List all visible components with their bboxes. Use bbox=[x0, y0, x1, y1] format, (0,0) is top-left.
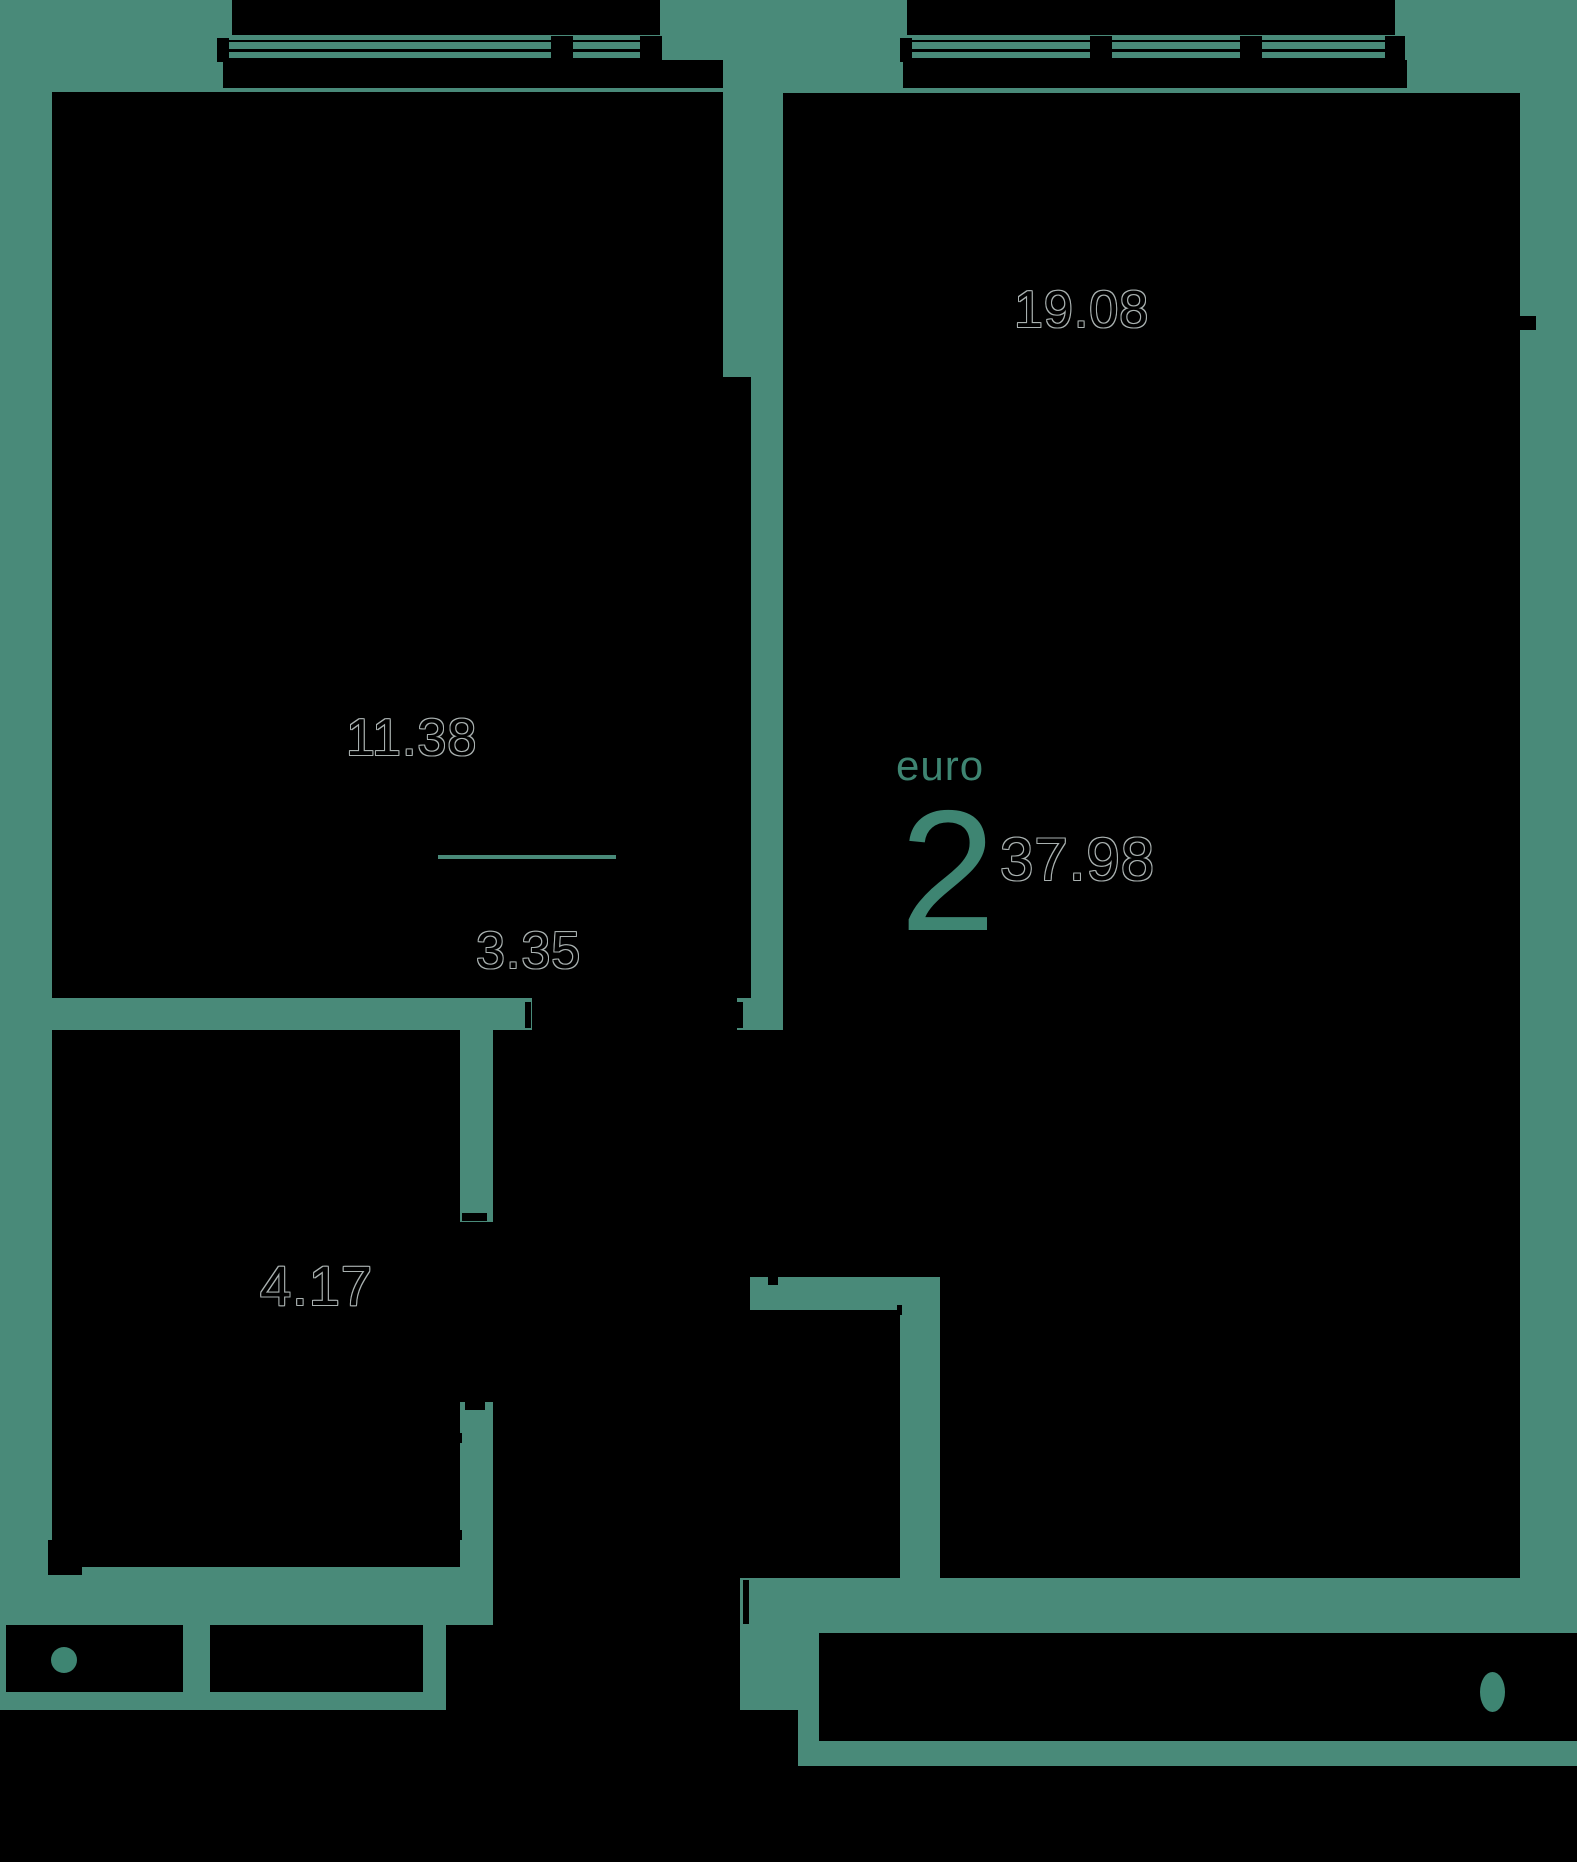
hall-door-tick-left bbox=[525, 1002, 531, 1028]
window-left-glazing-line bbox=[224, 49, 658, 52]
balcony-door-tick bbox=[743, 1580, 749, 1624]
stub-corner-tick bbox=[768, 1277, 778, 1285]
window-right-glazing-line bbox=[907, 49, 1401, 52]
window-left-sill bbox=[223, 60, 723, 88]
room-bathroom bbox=[52, 1030, 460, 1567]
balcony-passage-lower bbox=[446, 1625, 740, 1710]
stub-edge-tick bbox=[897, 1305, 902, 1315]
wall-notch-2 bbox=[457, 1530, 462, 1540]
bathroom-door-tick-top bbox=[462, 1213, 487, 1221]
window-left-right-bracket bbox=[640, 36, 662, 62]
column-dot-left-icon bbox=[51, 1647, 77, 1673]
bedroom-hall-opening-line bbox=[434, 855, 622, 859]
window-right-sill bbox=[903, 60, 1407, 88]
window-right-right-bracket bbox=[1385, 36, 1405, 62]
facade-strip-right bbox=[907, 0, 1395, 35]
hall-door-opening bbox=[532, 998, 737, 1030]
room-living-area-label: 19.08 bbox=[1014, 284, 1149, 336]
bathroom-door-opening bbox=[460, 1222, 493, 1402]
corridor bbox=[493, 1030, 783, 1578]
room-hallway-area-label: 3.35 bbox=[476, 925, 581, 977]
bathroom-niche bbox=[48, 1540, 82, 1575]
room-bathroom-area-label: 4.17 bbox=[260, 1258, 373, 1314]
column-dot-right-icon bbox=[1480, 1672, 1505, 1712]
room-bedroom-step bbox=[723, 377, 751, 998]
balcony-passage-upper bbox=[493, 1578, 740, 1628]
kitchen-wall-stub-vertical bbox=[900, 1277, 940, 1578]
window-left-end-bracket bbox=[217, 38, 229, 62]
floor-plan-canvas: 19.08 11.38 3.35 4.17 euro 2 37.98 bbox=[0, 0, 1577, 1862]
room-bedroom-area-label: 11.38 bbox=[346, 712, 477, 764]
window-right-mullion-1 bbox=[1090, 36, 1112, 62]
bottom-band-full bbox=[0, 1766, 1577, 1862]
plan-rooms-count: 2 bbox=[900, 785, 996, 957]
opening-tick-left bbox=[432, 849, 438, 865]
window-left-mullion bbox=[551, 36, 573, 62]
opening-tick-right bbox=[616, 849, 622, 865]
hall-door-tick-right bbox=[737, 1002, 743, 1028]
facade-strip-left bbox=[232, 0, 660, 35]
window-right-end-bracket bbox=[900, 38, 912, 62]
ledge-left-b bbox=[210, 1625, 423, 1692]
room-bedroom bbox=[52, 92, 723, 998]
ledge-left-a bbox=[6, 1625, 183, 1692]
right-wall-tick bbox=[1520, 316, 1536, 330]
balcony-right bbox=[819, 1633, 1577, 1741]
window-right-mullion-2 bbox=[1240, 36, 1262, 62]
plan-total-area-label: 37.98 bbox=[1000, 830, 1155, 890]
bathroom-door-tick-bottom bbox=[465, 1402, 485, 1410]
wall-notch-1 bbox=[457, 1433, 462, 1443]
